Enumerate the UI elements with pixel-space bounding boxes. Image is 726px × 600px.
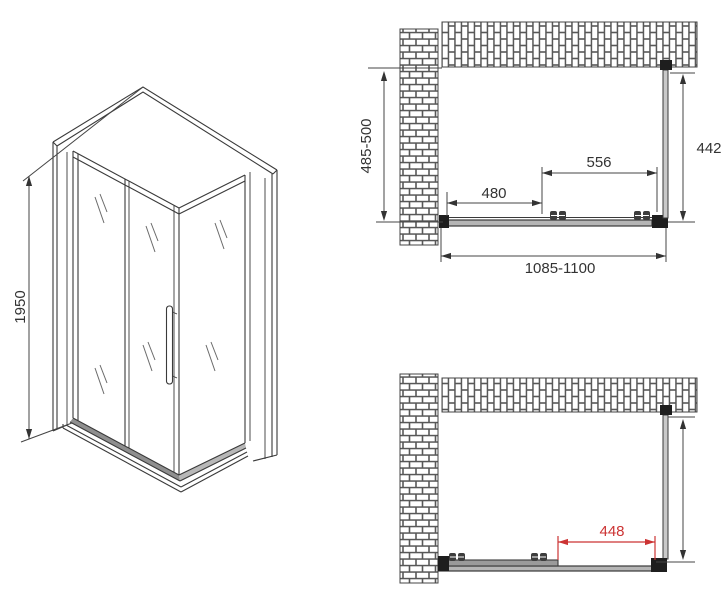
side-panel-plan bbox=[660, 60, 672, 218]
opening-dimension: 448 bbox=[558, 523, 655, 560]
bottom-rail-assembly bbox=[439, 211, 668, 228]
plan-depth-label: 485-500 bbox=[358, 118, 375, 173]
isometric-view: 1950 bbox=[12, 87, 277, 492]
side-panel-dimension-2 bbox=[656, 417, 695, 562]
door-handle bbox=[167, 306, 178, 384]
wall-hatch-vertical-2 bbox=[400, 374, 438, 583]
enclosure-frame bbox=[73, 151, 250, 475]
side-panel-label: 442 bbox=[696, 140, 721, 157]
wall-profile-left-2 bbox=[438, 556, 449, 571]
glass-reflections bbox=[95, 194, 227, 394]
back-walls bbox=[53, 87, 277, 461]
overall-width-dimension: 1085-1100 bbox=[441, 228, 666, 277]
wall-hatch-vertical bbox=[400, 29, 438, 245]
door-panel-dimension: 556 bbox=[542, 154, 657, 214]
side-wall-profile-2 bbox=[660, 405, 672, 415]
bottom-rail-assembly-open bbox=[438, 553, 667, 572]
technical-drawing: 1950 bbox=[0, 0, 726, 600]
overall-width-label: 1085-1100 bbox=[525, 260, 596, 277]
side-panel-plan-2 bbox=[660, 405, 672, 559]
wall-hatch-horizontal-2 bbox=[442, 378, 697, 412]
plan-view-closed: 485-500 442 556 480 bbox=[358, 22, 722, 277]
door-panel-label: 556 bbox=[586, 154, 611, 171]
fixed-panel-dimension: 480 bbox=[447, 185, 542, 216]
base-tray bbox=[63, 418, 248, 492]
plan-view-open: 448 bbox=[400, 374, 697, 583]
side-panel-dimension: 442 bbox=[668, 73, 722, 222]
wall-hatch-horizontal bbox=[442, 22, 697, 67]
corner-profile-right-2 bbox=[651, 558, 667, 572]
door-rollers bbox=[550, 211, 650, 220]
drawing-canvas: 1950 bbox=[0, 0, 726, 600]
fixed-panel-label: 480 bbox=[481, 185, 506, 202]
opening-width-label: 448 bbox=[599, 523, 624, 540]
side-wall-profile bbox=[660, 60, 672, 70]
iso-height-label: 1950 bbox=[12, 290, 29, 323]
